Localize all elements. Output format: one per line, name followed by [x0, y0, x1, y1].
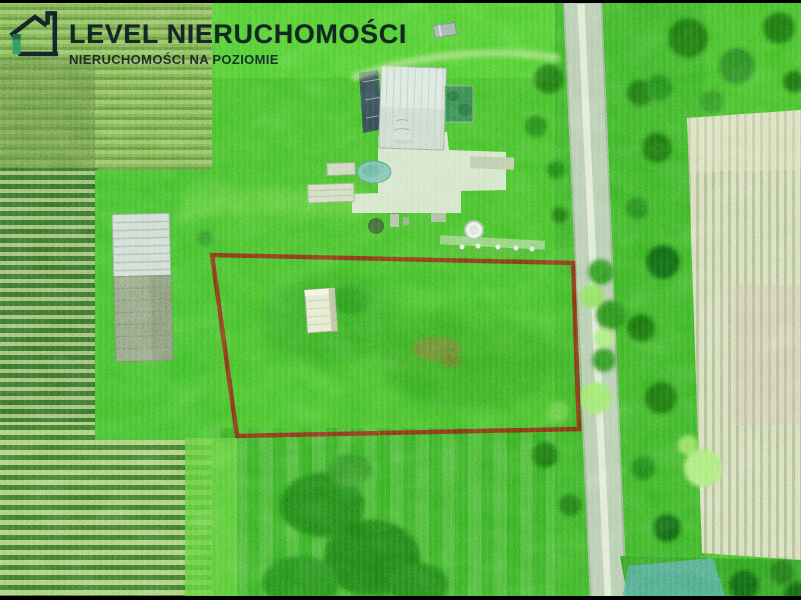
- brand-tagline: NIERUCHOMOŚCI NA POZIOMIE: [69, 52, 407, 67]
- letterbox-top: [0, 0, 801, 3]
- aerial-photo-scene: [0, 0, 801, 600]
- letterbox-bottom: [0, 596, 801, 600]
- photo-texture-overlay: [0, 0, 801, 600]
- brand-name: LEVEL NIERUCHOMOŚCI: [69, 21, 407, 48]
- aerial-photo: LEVEL NIERUCHOMOŚCI NIERUCHOMOŚCI NA POZ…: [0, 0, 801, 600]
- house-with-level-logo-icon: [8, 10, 62, 60]
- brand-watermark: LEVEL NIERUCHOMOŚCI NIERUCHOMOŚCI NA POZ…: [8, 10, 407, 67]
